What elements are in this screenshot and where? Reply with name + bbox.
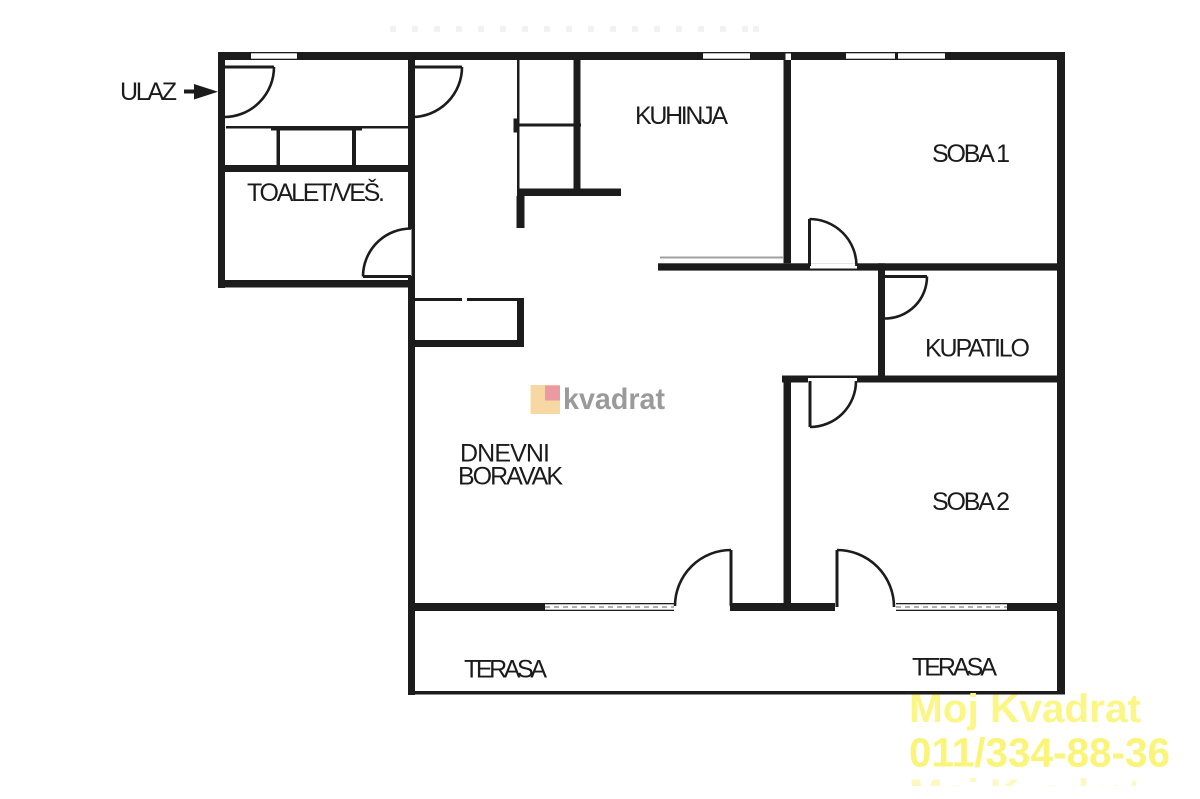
svg-text:kvadrat: kvadrat [563, 383, 665, 416]
svg-text:TOALET/VEŠ.: TOALET/VEŠ. [247, 178, 385, 207]
svg-text:SOBA 2: SOBA 2 [932, 488, 1010, 516]
svg-text:KUHINJA: KUHINJA [635, 102, 728, 130]
svg-text:TERASA: TERASA [464, 656, 547, 684]
svg-text:SOBA 1: SOBA 1 [932, 140, 1010, 168]
svg-text:ULAZ: ULAZ [120, 78, 177, 106]
svg-text:KUPATILO: KUPATILO [925, 335, 1030, 363]
svg-text:011/334-88-36: 011/334-88-36 [909, 730, 1170, 776]
svg-text:BORAVAK: BORAVAK [458, 463, 563, 491]
svg-text:Moj Kvadrat: Moj Kvadrat [909, 687, 1141, 731]
svg-text:TERASA: TERASA [912, 654, 997, 682]
